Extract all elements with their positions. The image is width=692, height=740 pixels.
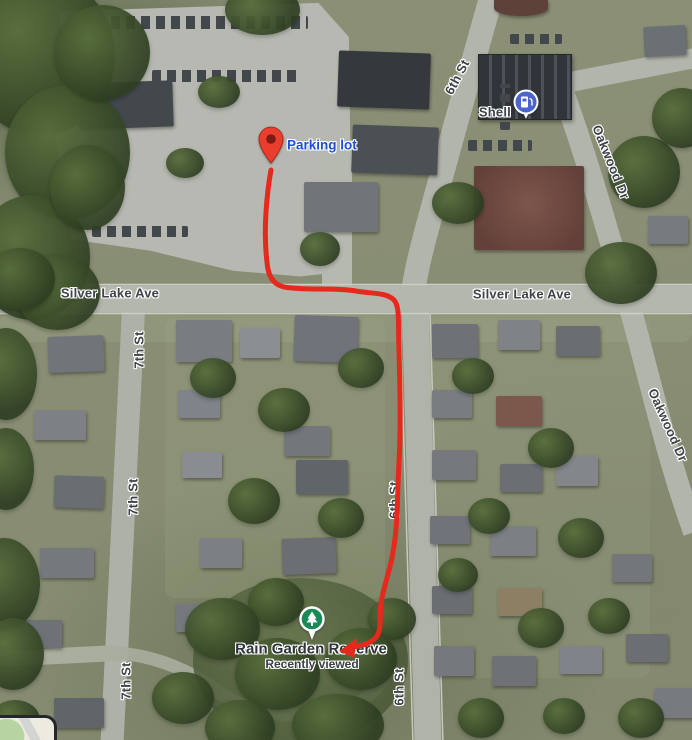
rain-garden-marker[interactable] — [297, 606, 327, 644]
map-canvas[interactable]: Silver Lake Ave Silver Lake Ave 6th St 6… — [0, 0, 692, 740]
pin-inner-dot — [266, 134, 276, 144]
red-pin-icon — [259, 127, 283, 163]
route-arrowhead — [339, 638, 357, 658]
parking-pin-marker[interactable] — [258, 126, 284, 164]
route-path — [265, 170, 400, 647]
route-overlay — [0, 0, 692, 740]
map-inset-toggle[interactable] — [0, 715, 57, 740]
shell-poi-marker[interactable] — [513, 89, 539, 121]
